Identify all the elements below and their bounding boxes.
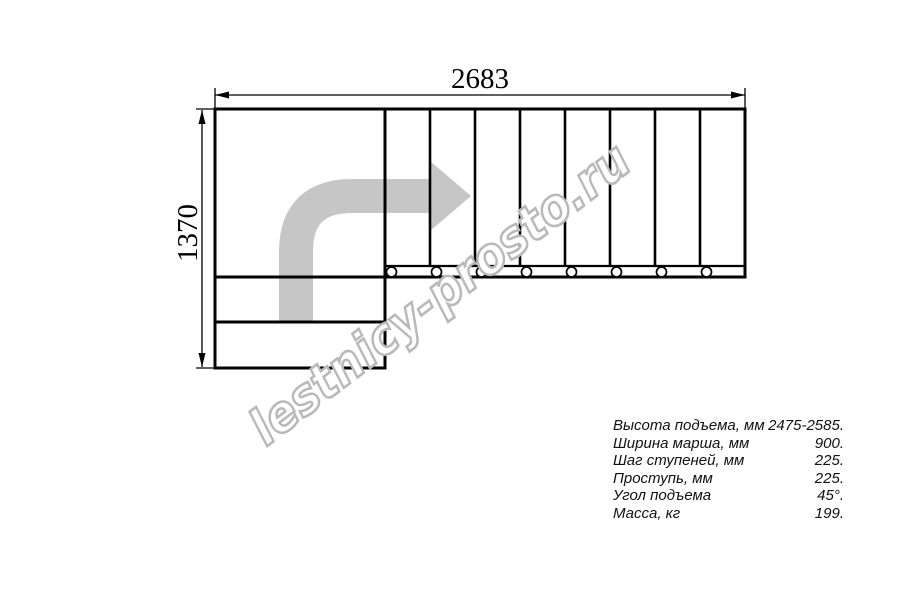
dimension-top: 2683 (215, 63, 745, 108)
spec-value: 45°. (817, 487, 844, 505)
spec-label: Угол подъема (613, 487, 711, 505)
dimension-left-value: 1370 (172, 204, 204, 262)
spec-row: Шаг ступеней, мм 225. (613, 452, 844, 470)
spec-value: 900. (815, 435, 844, 453)
dimension-arrow-bottom (199, 353, 206, 367)
tread-bolt (702, 267, 712, 277)
spec-value: 2475-2585. (768, 417, 844, 435)
dimension-top-value: 2683 (451, 63, 509, 95)
spec-row: Проступь, мм 225. (613, 470, 844, 488)
spec-value: 199. (815, 505, 844, 523)
spec-row: Масса, кг 199. (613, 505, 844, 523)
spec-row: Угол подъема 45°. (613, 487, 844, 505)
spec-value: 225. (815, 470, 844, 488)
spec-table: Высота подъема, мм 2475-2585. Ширина мар… (613, 417, 844, 522)
spec-label: Ширина марша, мм (613, 435, 749, 453)
spec-label: Проступь, мм (613, 470, 713, 488)
tread-bolt (612, 267, 622, 277)
spec-value: 225. (815, 452, 844, 470)
tread-bolt (522, 267, 532, 277)
drawing-canvas: 2683 1370 lestnicy-prosto.ru Высота подъ… (0, 0, 900, 600)
spec-label: Шаг ступеней, мм (613, 452, 744, 470)
spec-label: Масса, кг (613, 505, 680, 523)
spec-row: Высота подъема, мм 2475-2585. (613, 417, 844, 435)
dimension-left: 1370 (172, 109, 214, 368)
spec-row: Ширина марша, мм 900. (613, 435, 844, 453)
tread-bolt (387, 267, 397, 277)
dimension-arrow-top (199, 110, 206, 124)
dimension-arrow-right (731, 92, 745, 99)
tread-bolt (567, 267, 577, 277)
spec-label: Высота подъема, мм (613, 417, 765, 435)
dimension-arrow-left (215, 92, 229, 99)
tread-bolt (657, 267, 667, 277)
